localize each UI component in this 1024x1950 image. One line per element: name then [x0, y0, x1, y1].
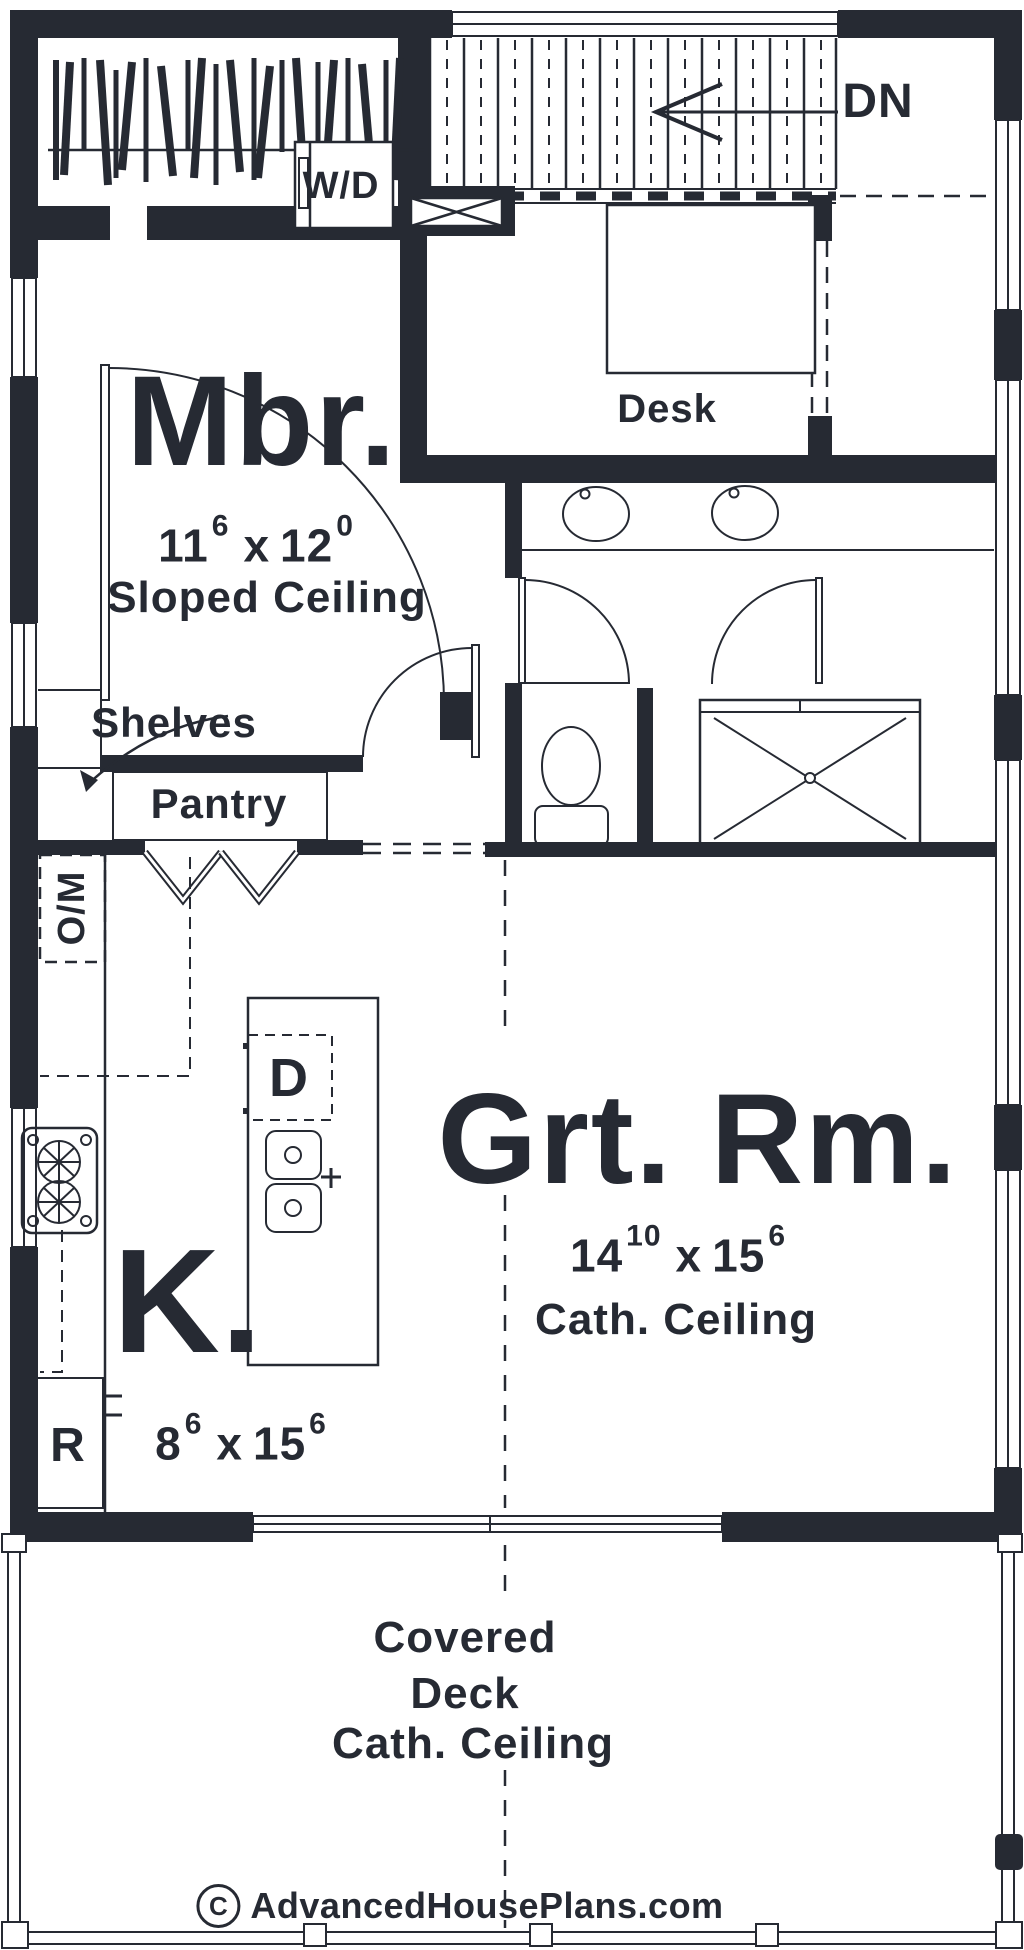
toilet-room-door	[519, 578, 630, 684]
label-washer-dryer: W/D	[303, 167, 380, 205]
floor-plan: W/D DN Desk Mbr. 116x120 Sloped Ceiling …	[0, 0, 1024, 1950]
shower-room-door	[712, 578, 822, 684]
deck-label-line1: Covered	[373, 1616, 556, 1660]
deck-label-line2: Deck	[410, 1672, 519, 1716]
pantry-bifold-doors	[145, 852, 297, 900]
sink-left-faucet	[581, 490, 590, 499]
great-room-ceiling: Cath. Ceiling	[535, 1298, 817, 1342]
copyright-site: AdvancedHousePlans.com	[250, 1885, 723, 1927]
shower	[700, 700, 920, 845]
kitchen-dimensions: 86x156	[155, 1410, 331, 1467]
stair-railing	[812, 196, 994, 416]
desk-counter	[607, 205, 815, 373]
chase-x-box	[411, 198, 502, 226]
sink-left	[563, 487, 629, 541]
deck-post	[995, 1834, 1023, 1870]
island	[243, 998, 378, 1365]
cased-opening	[363, 844, 485, 853]
label-oven-microwave: O/M	[53, 871, 91, 946]
great-room-dimensions: 1410x156	[570, 1222, 790, 1279]
label-pantry: Pantry	[151, 783, 288, 825]
label-refrigerator: R	[50, 1422, 86, 1470]
stairs	[428, 38, 836, 203]
down-arrow	[654, 84, 838, 140]
label-master-bedroom: Mbr.	[126, 358, 397, 486]
label-shelves: Shelves	[91, 702, 257, 744]
label-dishwasher: D	[269, 1051, 309, 1105]
deck-label-line3: Cath. Ceiling	[332, 1722, 614, 1766]
copyright: C AdvancedHousePlans.com	[196, 1884, 723, 1928]
label-great-room: Grt. Rm.	[438, 1076, 959, 1204]
label-down: DN	[842, 78, 913, 126]
master-ceiling: Sloped Ceiling	[107, 576, 427, 620]
copyright-symbol: C	[196, 1884, 240, 1928]
label-kitchen: K.	[113, 1228, 263, 1376]
bathroom	[522, 486, 994, 846]
sink-right-faucet	[730, 489, 739, 498]
master-dimensions: 116x120	[158, 512, 358, 569]
sink-right	[712, 486, 778, 540]
label-desk: Desk	[617, 389, 717, 429]
toilet	[535, 727, 608, 846]
